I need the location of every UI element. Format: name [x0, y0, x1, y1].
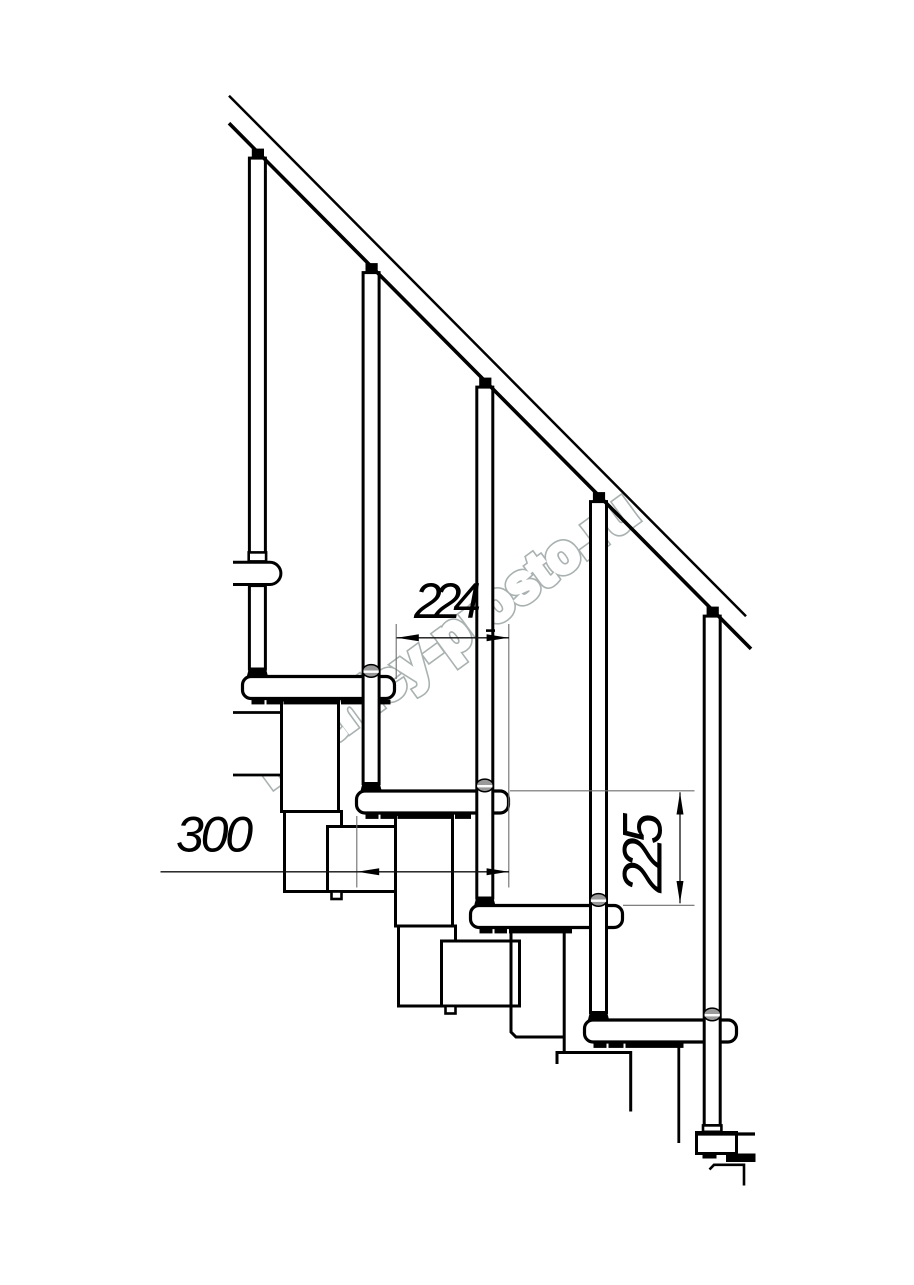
svg-text:300: 300: [176, 807, 253, 863]
svg-text:224: 224: [413, 573, 481, 629]
svg-text:225: 225: [611, 812, 674, 894]
